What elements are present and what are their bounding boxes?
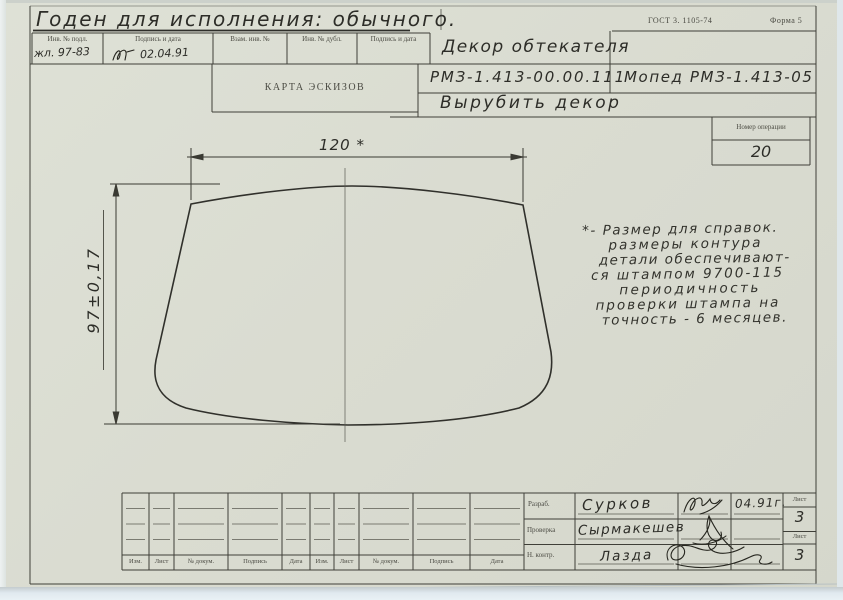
change-header-data-1: Дата — [282, 558, 310, 565]
inv-header-podl: Инв. № подл. — [32, 35, 103, 43]
height-dimension-label: 97±0,17 — [84, 210, 104, 370]
width-dimension-label: 120 * — [297, 136, 387, 154]
doc-number: РМЗ-1.413-00.00.111 — [430, 68, 626, 86]
paper-sheet: Годен для исполнения: обычного. ГОСТ 3. … — [0, 0, 843, 600]
inv-header-podpis1: Подпись и дата — [103, 35, 213, 43]
approval-note: Годен для исполнения: обычного. — [36, 7, 457, 31]
operation-name: Вырубить декор — [440, 93, 621, 113]
inv-header-vzam: Взам. инв. № — [213, 35, 287, 43]
role-razrab: Разраб. — [528, 500, 550, 508]
name-nkontr: Лазда — [600, 547, 654, 565]
doc-type: КАРТА ЭСКИЗОВ — [212, 82, 418, 93]
scan-edge-left — [0, 0, 6, 590]
sig-razrab — [684, 498, 722, 514]
part-outline — [155, 186, 552, 425]
change-header-izm-1: Изм. — [122, 558, 149, 565]
operation-number-value: 20 — [712, 142, 810, 161]
change-header-podpis-1: Подпись — [228, 558, 282, 565]
inv-number-value: жл. 97-83 — [34, 45, 90, 60]
scan-edge-right — [837, 0, 843, 588]
scan-edge-top — [0, 0, 843, 3]
change-header-dokum-1: № докум. — [174, 558, 228, 565]
sheet-label-bottom: Лист — [783, 533, 816, 540]
reference-note: *- Размер для справок. размеры контура д… — [574, 220, 826, 329]
inv-date-value: 02.04.91 — [140, 46, 190, 62]
sheet-label-top: Лист — [783, 496, 816, 503]
writing-guide-lines — [126, 509, 780, 565]
inv-header-podpis2: Подпись и дата — [357, 35, 430, 43]
role-nkontr: Н. контр. — [527, 551, 554, 559]
operation-number-label: Номер операции — [712, 123, 810, 131]
sheet-number-bottom: 3 — [783, 546, 816, 564]
change-header-list-1: Лист — [149, 558, 174, 565]
gost-label: ГОСТ 3. 1105-74 — [648, 16, 712, 25]
sheet-number-top: 3 — [783, 508, 816, 526]
date-razrab: 04.91г. — [735, 495, 787, 511]
inv-header-dubl: Инв. № дубл. — [287, 35, 357, 43]
change-header-list-2: Лист — [334, 558, 359, 565]
name-razrab: Сурков — [582, 494, 654, 514]
change-header-podpis-2: Подпись — [413, 558, 470, 565]
change-header-izm-2: Изм. — [310, 558, 334, 565]
dimension-lines — [104, 148, 527, 424]
scan-edge-bottom — [0, 587, 843, 600]
role-proverka: Проверка — [527, 526, 555, 534]
product-name: Мопед РМЗ-1.413-05 — [624, 68, 814, 86]
sig-approval — [113, 50, 134, 60]
change-header-dokum-2: № докум. — [359, 558, 413, 565]
part-name: Декор обтекателя — [442, 37, 630, 57]
change-header-data-2: Дата — [470, 558, 524, 565]
forma-label: Форма 5 — [770, 16, 802, 25]
part-drawing — [155, 168, 552, 442]
